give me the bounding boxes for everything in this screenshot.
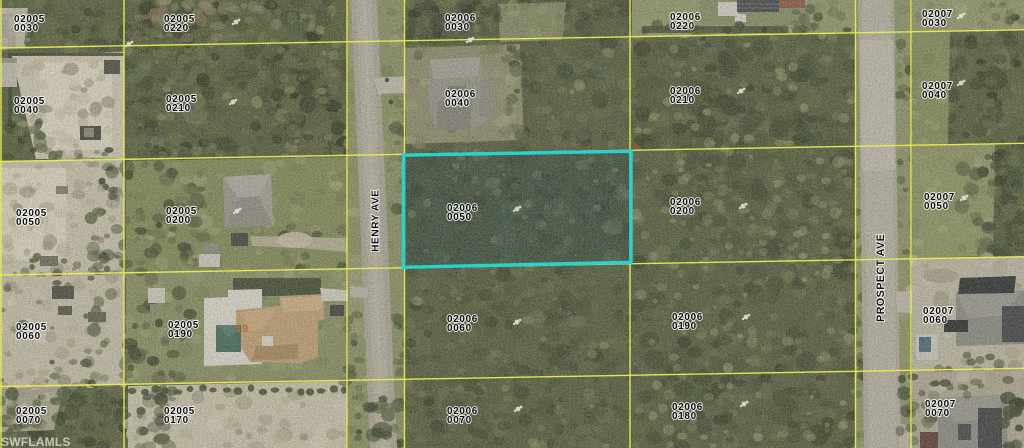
svg-text:PROSPECT AVE: PROSPECT AVE	[875, 234, 887, 322]
svg-text:0070: 0070	[447, 415, 472, 426]
svg-text:0040: 0040	[14, 105, 39, 116]
svg-text:0220: 0220	[670, 21, 695, 32]
svg-text:0200: 0200	[670, 206, 695, 217]
svg-text:0050: 0050	[447, 212, 472, 223]
svg-text:0030: 0030	[445, 22, 470, 33]
svg-text:0210: 0210	[670, 95, 695, 106]
svg-text:0040: 0040	[922, 90, 947, 101]
svg-text:0060: 0060	[923, 315, 948, 326]
svg-text:0190: 0190	[168, 329, 193, 340]
svg-text:0030: 0030	[14, 23, 39, 34]
svg-text:0070: 0070	[16, 415, 41, 426]
svg-text:0210: 0210	[166, 103, 191, 114]
svg-text:0190: 0190	[672, 321, 697, 332]
svg-text:0060: 0060	[447, 323, 472, 334]
svg-text:0200: 0200	[166, 215, 191, 226]
svg-text:HENRY AVE: HENRY AVE	[371, 190, 382, 253]
svg-text:0050: 0050	[16, 217, 41, 228]
svg-text:0030: 0030	[922, 18, 947, 29]
svg-text:0050: 0050	[924, 201, 949, 212]
svg-text:SWFLAMLS: SWFLAMLS	[1, 435, 71, 448]
svg-text:0170: 0170	[164, 415, 189, 426]
svg-text:0040: 0040	[445, 98, 470, 109]
svg-text:0070: 0070	[925, 408, 950, 419]
svg-text:0180: 0180	[672, 411, 697, 422]
svg-text:0220: 0220	[164, 23, 189, 34]
svg-text:0060: 0060	[16, 331, 41, 342]
